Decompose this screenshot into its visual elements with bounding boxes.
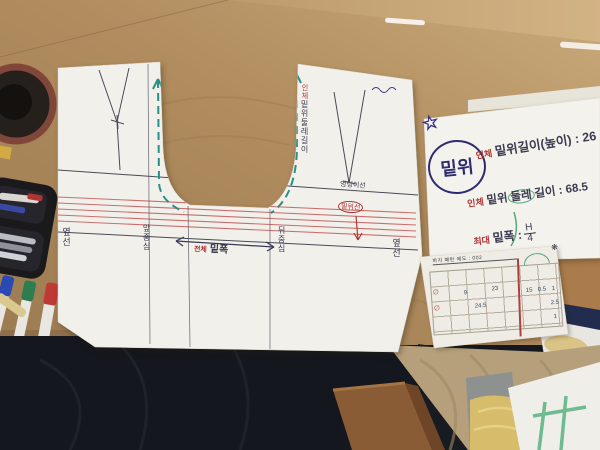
form-value: 23	[491, 286, 498, 292]
note-line-2-prefix: 인체	[467, 197, 485, 209]
form-value: 9	[464, 290, 468, 296]
form-sheet-content: ❋ 바지 패턴 제도 : 002 ∅ ∅ 9 23 24.5 15 0.5 1 …	[424, 244, 568, 345]
note-line-2-part1: 밑위	[486, 192, 509, 207]
side-seam-right-label: 옆선	[390, 238, 403, 258]
fraction-h-over-4: H4	[523, 222, 537, 244]
form-value: 2.5	[551, 300, 560, 307]
form-value: 1	[552, 286, 556, 292]
note-line-3-label: 밑폭 :	[492, 228, 523, 245]
form-value: 24.5	[475, 303, 487, 310]
crotch-guide-prefix: 인체	[301, 84, 308, 100]
center-front-label: 앞중심	[141, 224, 152, 251]
photo-of-pattern-drafting-desk: { "pattern_sheet": { "crotch_guide_prefi…	[0, 0, 600, 450]
form-value: 0.5	[538, 287, 547, 294]
width-arrow-label: 전체밑폭	[194, 238, 229, 258]
form-red-mark-1: ∅	[432, 288, 439, 296]
note-line-1-prefix: 인체	[475, 148, 493, 160]
crotch-guide-vertical-label: 인체밑위둘레길이	[299, 84, 310, 154]
circled-title-text: 밑위	[439, 152, 475, 181]
note-line-2-circled: 둘레	[507, 188, 536, 206]
width-arrow-prefix: 전체	[194, 246, 207, 254]
form-value: 15	[526, 288, 533, 294]
fraction-denominator: 4	[524, 232, 537, 244]
form-measurement-table: ∅ ∅ 9 23 24.5 15 0.5 1 2.5 1	[429, 263, 563, 336]
width-arrow-text: 밑폭	[210, 244, 229, 256]
side-seam-left-label: 옆선	[60, 227, 73, 247]
form-red-line	[517, 258, 522, 336]
crotch-guide-text: 밑위둘레길이	[300, 100, 309, 154]
note-line-3-prefix: 최대	[473, 235, 491, 247]
form-flower-mark: ❋	[551, 243, 558, 252]
flower-pot	[0, 67, 53, 141]
form-red-mark-2: ∅	[434, 304, 441, 312]
center-back-label: 뒤중심	[276, 226, 287, 253]
form-title: 바지 패턴 제도 : 002	[432, 251, 518, 265]
hip-line-label: 엉덩이선	[340, 179, 366, 191]
form-value: 1	[554, 314, 558, 320]
form-green-check-arc	[523, 252, 550, 265]
